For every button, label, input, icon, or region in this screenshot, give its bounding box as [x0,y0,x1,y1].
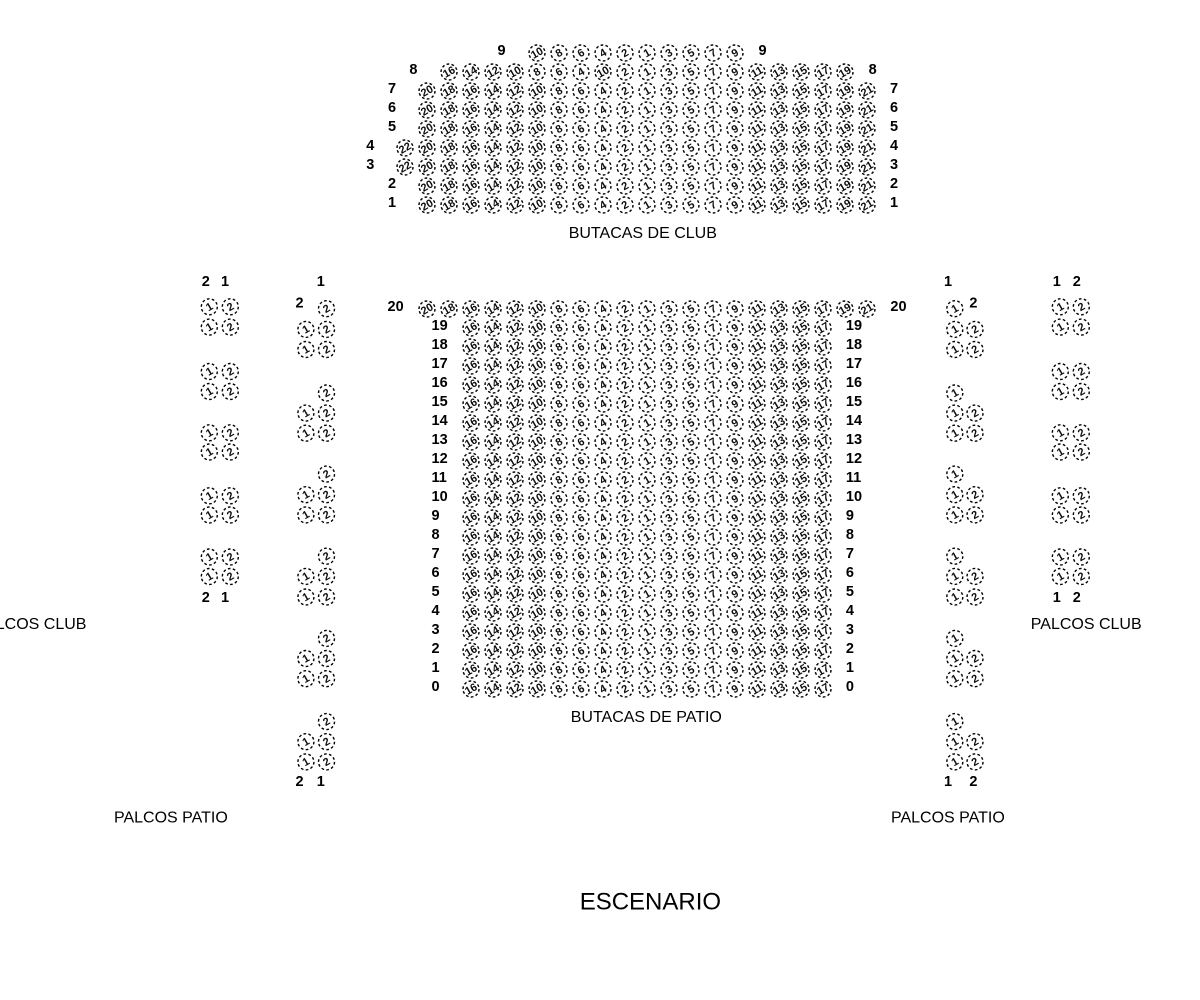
svg-text:1: 1 [642,341,653,354]
svg-text:1: 1 [642,455,653,468]
svg-text:8: 8 [554,322,565,335]
svg-text:6: 6 [576,85,587,98]
svg-text:2: 2 [620,180,631,193]
svg-text:7: 7 [708,474,719,487]
svg-text:6: 6 [846,565,854,581]
svg-text:7: 7 [708,123,719,136]
svg-text:7: 7 [708,180,719,193]
svg-text:4: 4 [598,473,610,487]
svg-text:1: 1 [1055,570,1066,583]
svg-text:9: 9 [730,199,741,212]
svg-text:1: 1 [301,591,312,604]
svg-text:2: 2 [225,551,236,564]
svg-text:2: 2 [225,321,236,334]
svg-text:2: 2 [620,123,631,136]
svg-text:16: 16 [846,375,862,391]
svg-text:18: 18 [846,337,862,353]
svg-text:8: 8 [554,142,565,155]
svg-text:1: 1 [1053,590,1061,606]
svg-text:6: 6 [576,199,587,212]
svg-text:5: 5 [686,322,697,335]
svg-text:3: 3 [664,303,675,316]
svg-text:4: 4 [598,141,610,155]
svg-text:2: 2 [321,632,332,645]
svg-text:1: 1 [642,398,653,411]
svg-text:6: 6 [576,47,587,60]
svg-text:2: 2 [321,652,332,665]
svg-text:2: 2 [321,591,332,604]
svg-text:3: 3 [890,157,898,173]
svg-text:12: 12 [432,451,448,467]
svg-text:6: 6 [576,531,587,544]
svg-text:1: 1 [301,570,312,583]
svg-text:5: 5 [686,398,697,411]
svg-text:2: 2 [620,531,631,544]
svg-text:8: 8 [554,683,565,696]
svg-text:6: 6 [576,569,587,582]
svg-text:11: 11 [432,470,447,486]
svg-text:4: 4 [432,603,440,619]
svg-text:1: 1 [949,407,960,420]
svg-text:5: 5 [686,85,697,98]
svg-text:8: 8 [554,161,565,174]
svg-text:5: 5 [686,588,697,601]
svg-text:3: 3 [664,664,675,677]
svg-text:9: 9 [730,664,741,677]
svg-text:2: 2 [620,66,631,79]
svg-text:8: 8 [532,66,543,79]
svg-text:1: 1 [846,660,854,676]
svg-text:2: 2 [1076,385,1087,398]
svg-text:9: 9 [730,512,741,525]
svg-text:2: 2 [846,641,854,657]
svg-text:9: 9 [730,493,741,506]
svg-text:5: 5 [686,379,697,392]
svg-text:9: 9 [730,303,741,316]
svg-text:2: 2 [620,550,631,563]
svg-text:9: 9 [730,398,741,411]
svg-text:2: 2 [620,607,631,620]
svg-text:6: 6 [576,455,587,468]
svg-text:7: 7 [708,417,719,430]
svg-text:6: 6 [576,626,587,639]
svg-text:6: 6 [576,436,587,449]
svg-text:1: 1 [221,590,229,606]
svg-text:6: 6 [576,607,587,620]
svg-text:2: 2 [225,385,236,398]
svg-text:2: 2 [321,735,332,748]
svg-text:2: 2 [321,468,332,481]
svg-text:1: 1 [1055,301,1066,314]
svg-text:6: 6 [576,474,587,487]
svg-text:5: 5 [686,180,697,193]
svg-text:3: 3 [664,142,675,155]
svg-text:7: 7 [708,550,719,563]
svg-text:9: 9 [730,360,741,373]
svg-text:1: 1 [301,735,312,748]
svg-text:4: 4 [598,530,610,544]
svg-text:4: 4 [598,46,610,60]
svg-text:5: 5 [686,512,697,525]
svg-text:3: 3 [664,104,675,117]
svg-text:1: 1 [301,407,312,420]
svg-text:2: 2 [432,641,440,657]
svg-text:PALCOS PATIO: PALCOS PATIO [114,810,228,827]
svg-text:1: 1 [301,652,312,665]
svg-text:2: 2 [295,774,303,790]
svg-text:7: 7 [708,47,719,60]
svg-text:4: 4 [598,378,610,392]
svg-text:4: 4 [846,603,854,619]
svg-text:15: 15 [432,394,448,410]
svg-text:8: 8 [846,527,854,543]
svg-text:1: 1 [1055,321,1066,334]
svg-text:9: 9 [730,645,741,658]
svg-text:2: 2 [970,672,981,685]
svg-text:3: 3 [664,379,675,392]
svg-text:6: 6 [576,683,587,696]
svg-text:2: 2 [970,652,981,665]
svg-text:ESCENARIO: ESCENARIO [580,888,721,915]
svg-text:1: 1 [642,664,653,677]
svg-text:2: 2 [321,756,332,769]
svg-text:15: 15 [846,394,862,410]
svg-text:2: 2 [1076,321,1087,334]
svg-text:8: 8 [554,436,565,449]
svg-text:9: 9 [730,436,741,449]
svg-text:2: 2 [321,407,332,420]
svg-text:9: 9 [730,455,741,468]
svg-text:1: 1 [949,509,960,522]
svg-text:5: 5 [686,161,697,174]
svg-text:16: 16 [432,375,448,391]
svg-text:7: 7 [708,531,719,544]
svg-text:3: 3 [664,588,675,601]
svg-text:1: 1 [642,142,653,155]
svg-text:PALCOS PATIO: PALCOS PATIO [891,810,1005,827]
svg-text:6: 6 [388,100,396,116]
svg-text:8: 8 [554,474,565,487]
svg-text:4: 4 [598,179,610,193]
svg-text:5: 5 [686,436,697,449]
svg-text:1: 1 [642,199,653,212]
svg-text:5: 5 [686,683,697,696]
svg-text:3: 3 [664,550,675,563]
svg-text:5: 5 [686,341,697,354]
svg-text:2: 2 [620,303,631,316]
svg-text:1: 1 [301,323,312,336]
svg-text:8: 8 [554,199,565,212]
svg-text:1: 1 [949,387,960,400]
svg-text:7: 7 [708,664,719,677]
svg-text:2: 2 [321,550,332,563]
svg-text:5: 5 [686,493,697,506]
svg-text:3: 3 [664,66,675,79]
svg-text:9: 9 [730,104,741,117]
svg-text:2: 2 [970,509,981,522]
svg-text:1: 1 [204,490,215,503]
svg-text:1: 1 [1055,551,1066,564]
svg-text:1: 1 [204,385,215,398]
svg-text:2: 2 [202,590,210,606]
svg-text:9: 9 [432,508,440,524]
svg-text:2: 2 [321,715,332,728]
svg-text:3: 3 [664,531,675,544]
svg-text:3: 3 [664,512,675,525]
svg-text:2: 2 [225,490,236,503]
svg-text:BUTACAS DE CLUB: BUTACAS DE CLUB [569,225,717,242]
svg-text:4: 4 [598,397,610,411]
svg-text:3: 3 [664,569,675,582]
svg-text:2: 2 [321,488,332,501]
svg-text:9: 9 [730,85,741,98]
svg-text:4: 4 [598,198,610,212]
svg-text:1: 1 [204,321,215,334]
svg-text:1: 1 [642,47,653,60]
svg-text:9: 9 [730,180,741,193]
svg-text:5: 5 [686,303,697,316]
svg-text:2: 2 [620,199,631,212]
svg-text:8: 8 [554,550,565,563]
svg-text:1: 1 [642,683,653,696]
svg-text:3: 3 [664,455,675,468]
svg-text:4: 4 [598,682,610,696]
svg-text:4: 4 [598,568,610,582]
svg-text:1: 1 [949,468,960,481]
svg-text:2: 2 [1076,427,1087,440]
svg-text:2: 2 [970,427,981,440]
svg-text:BUTACAS DE PATIO: BUTACAS DE PATIO [571,709,722,726]
svg-text:2: 2 [620,398,631,411]
svg-text:13: 13 [432,432,448,448]
svg-text:7: 7 [708,588,719,601]
svg-text:4: 4 [598,321,610,335]
svg-text:1: 1 [642,322,653,335]
svg-text:5: 5 [686,47,697,60]
svg-text:6: 6 [576,142,587,155]
svg-text:PALCOS CLUB: PALCOS CLUB [1031,616,1142,633]
svg-text:2: 2 [620,588,631,601]
svg-text:7: 7 [708,493,719,506]
svg-text:6: 6 [576,322,587,335]
svg-text:2: 2 [970,488,981,501]
svg-text:2: 2 [970,570,981,583]
svg-text:5: 5 [686,531,697,544]
svg-text:4: 4 [598,122,610,136]
svg-text:8: 8 [554,588,565,601]
svg-text:8: 8 [869,62,877,78]
svg-text:20: 20 [388,299,404,315]
svg-text:7: 7 [708,85,719,98]
svg-text:2: 2 [1076,570,1087,583]
svg-text:4: 4 [598,435,610,449]
svg-text:6: 6 [576,180,587,193]
svg-text:9: 9 [730,417,741,430]
svg-text:6: 6 [576,417,587,430]
svg-text:7: 7 [708,683,719,696]
svg-text:1: 1 [642,645,653,658]
svg-text:6: 6 [576,161,587,174]
svg-text:1: 1 [642,531,653,544]
svg-text:1: 1 [301,488,312,501]
svg-text:5: 5 [686,455,697,468]
svg-text:1: 1 [204,427,215,440]
svg-text:7: 7 [388,81,396,97]
svg-text:2: 2 [225,301,236,314]
svg-text:8: 8 [554,664,565,677]
svg-text:5: 5 [686,626,697,639]
svg-text:5: 5 [686,607,697,620]
svg-text:9: 9 [730,550,741,563]
svg-text:2: 2 [620,455,631,468]
svg-text:1: 1 [949,735,960,748]
svg-text:8: 8 [554,531,565,544]
svg-text:10: 10 [846,489,862,505]
svg-text:6: 6 [576,379,587,392]
svg-text:8: 8 [554,455,565,468]
svg-text:6: 6 [576,645,587,658]
svg-text:5: 5 [686,104,697,117]
svg-text:1: 1 [317,274,325,290]
svg-text:1: 1 [301,672,312,685]
svg-text:1: 1 [1055,509,1066,522]
svg-text:6: 6 [576,123,587,136]
svg-text:9: 9 [730,47,741,60]
svg-text:1: 1 [642,607,653,620]
svg-text:6: 6 [576,104,587,117]
svg-text:2: 2 [620,85,631,98]
svg-text:7: 7 [708,199,719,212]
svg-text:3: 3 [664,322,675,335]
svg-text:1: 1 [642,360,653,373]
svg-text:6: 6 [576,303,587,316]
svg-text:1: 1 [890,195,898,211]
svg-text:9: 9 [730,569,741,582]
svg-text:2: 2 [620,474,631,487]
svg-text:1: 1 [1055,365,1066,378]
svg-text:2: 2 [620,360,631,373]
svg-text:9: 9 [730,683,741,696]
svg-text:8: 8 [554,180,565,193]
svg-text:3: 3 [664,180,675,193]
svg-text:3: 3 [664,123,675,136]
svg-text:2: 2 [620,569,631,582]
svg-text:8: 8 [554,303,565,316]
svg-text:5: 5 [686,417,697,430]
svg-text:2: 2 [321,427,332,440]
svg-text:8: 8 [554,360,565,373]
svg-text:1: 1 [944,774,952,790]
svg-text:1: 1 [642,512,653,525]
svg-text:5: 5 [686,199,697,212]
svg-text:1: 1 [301,427,312,440]
svg-text:1: 1 [949,427,960,440]
svg-text:8: 8 [554,607,565,620]
svg-text:7: 7 [708,322,719,335]
svg-text:1: 1 [204,509,215,522]
svg-text:8: 8 [432,527,440,543]
svg-text:5: 5 [686,142,697,155]
svg-text:20: 20 [890,299,906,315]
svg-text:7: 7 [708,142,719,155]
svg-text:2: 2 [225,365,236,378]
svg-text:7: 7 [708,607,719,620]
svg-text:7: 7 [708,161,719,174]
svg-text:6: 6 [576,341,587,354]
svg-text:2: 2 [1076,509,1087,522]
svg-text:3: 3 [664,417,675,430]
svg-text:1: 1 [642,493,653,506]
svg-text:1: 1 [949,715,960,728]
svg-text:14: 14 [432,413,448,429]
svg-text:1: 1 [221,274,229,290]
svg-text:2: 2 [620,626,631,639]
svg-text:1: 1 [949,570,960,583]
svg-text:1: 1 [642,436,653,449]
svg-text:2: 2 [620,664,631,677]
svg-text:2: 2 [969,774,977,790]
svg-text:3: 3 [432,622,440,638]
svg-text:2: 2 [1076,301,1087,314]
svg-text:2: 2 [321,387,332,400]
svg-text:9: 9 [730,626,741,639]
svg-text:2: 2 [970,735,981,748]
svg-text:5: 5 [686,66,697,79]
svg-text:6: 6 [890,100,898,116]
svg-text:3: 3 [664,683,675,696]
svg-text:8: 8 [554,626,565,639]
svg-text:1: 1 [642,85,653,98]
svg-text:17: 17 [846,356,862,372]
svg-text:7: 7 [708,569,719,582]
svg-text:2: 2 [620,645,631,658]
svg-text:2: 2 [321,343,332,356]
svg-text:1: 1 [642,569,653,582]
svg-text:13: 13 [846,432,862,448]
svg-text:1: 1 [642,417,653,430]
svg-text:19: 19 [432,318,448,334]
svg-text:4: 4 [598,416,610,430]
svg-text:4: 4 [598,103,610,117]
svg-text:2: 2 [620,47,631,60]
svg-text:2: 2 [388,176,396,192]
svg-text:3: 3 [664,360,675,373]
svg-text:2: 2 [620,436,631,449]
svg-text:5: 5 [846,584,854,600]
svg-text:2: 2 [970,756,981,769]
svg-text:4: 4 [598,492,610,506]
svg-text:5: 5 [686,474,697,487]
svg-text:2: 2 [620,379,631,392]
svg-text:1: 1 [204,570,215,583]
svg-text:1: 1 [949,323,960,336]
svg-text:2: 2 [321,509,332,522]
svg-text:1: 1 [204,446,215,459]
svg-text:0: 0 [846,679,854,695]
svg-text:1: 1 [642,104,653,117]
svg-text:3: 3 [664,626,675,639]
svg-text:9: 9 [846,508,854,524]
svg-text:1: 1 [949,343,960,356]
svg-text:4: 4 [890,138,898,154]
svg-text:1: 1 [204,365,215,378]
svg-text:1: 1 [944,274,952,290]
svg-text:2: 2 [969,296,977,312]
svg-text:9: 9 [759,43,767,59]
svg-text:2: 2 [970,323,981,336]
svg-text:3: 3 [846,622,854,638]
svg-text:4: 4 [598,454,610,468]
